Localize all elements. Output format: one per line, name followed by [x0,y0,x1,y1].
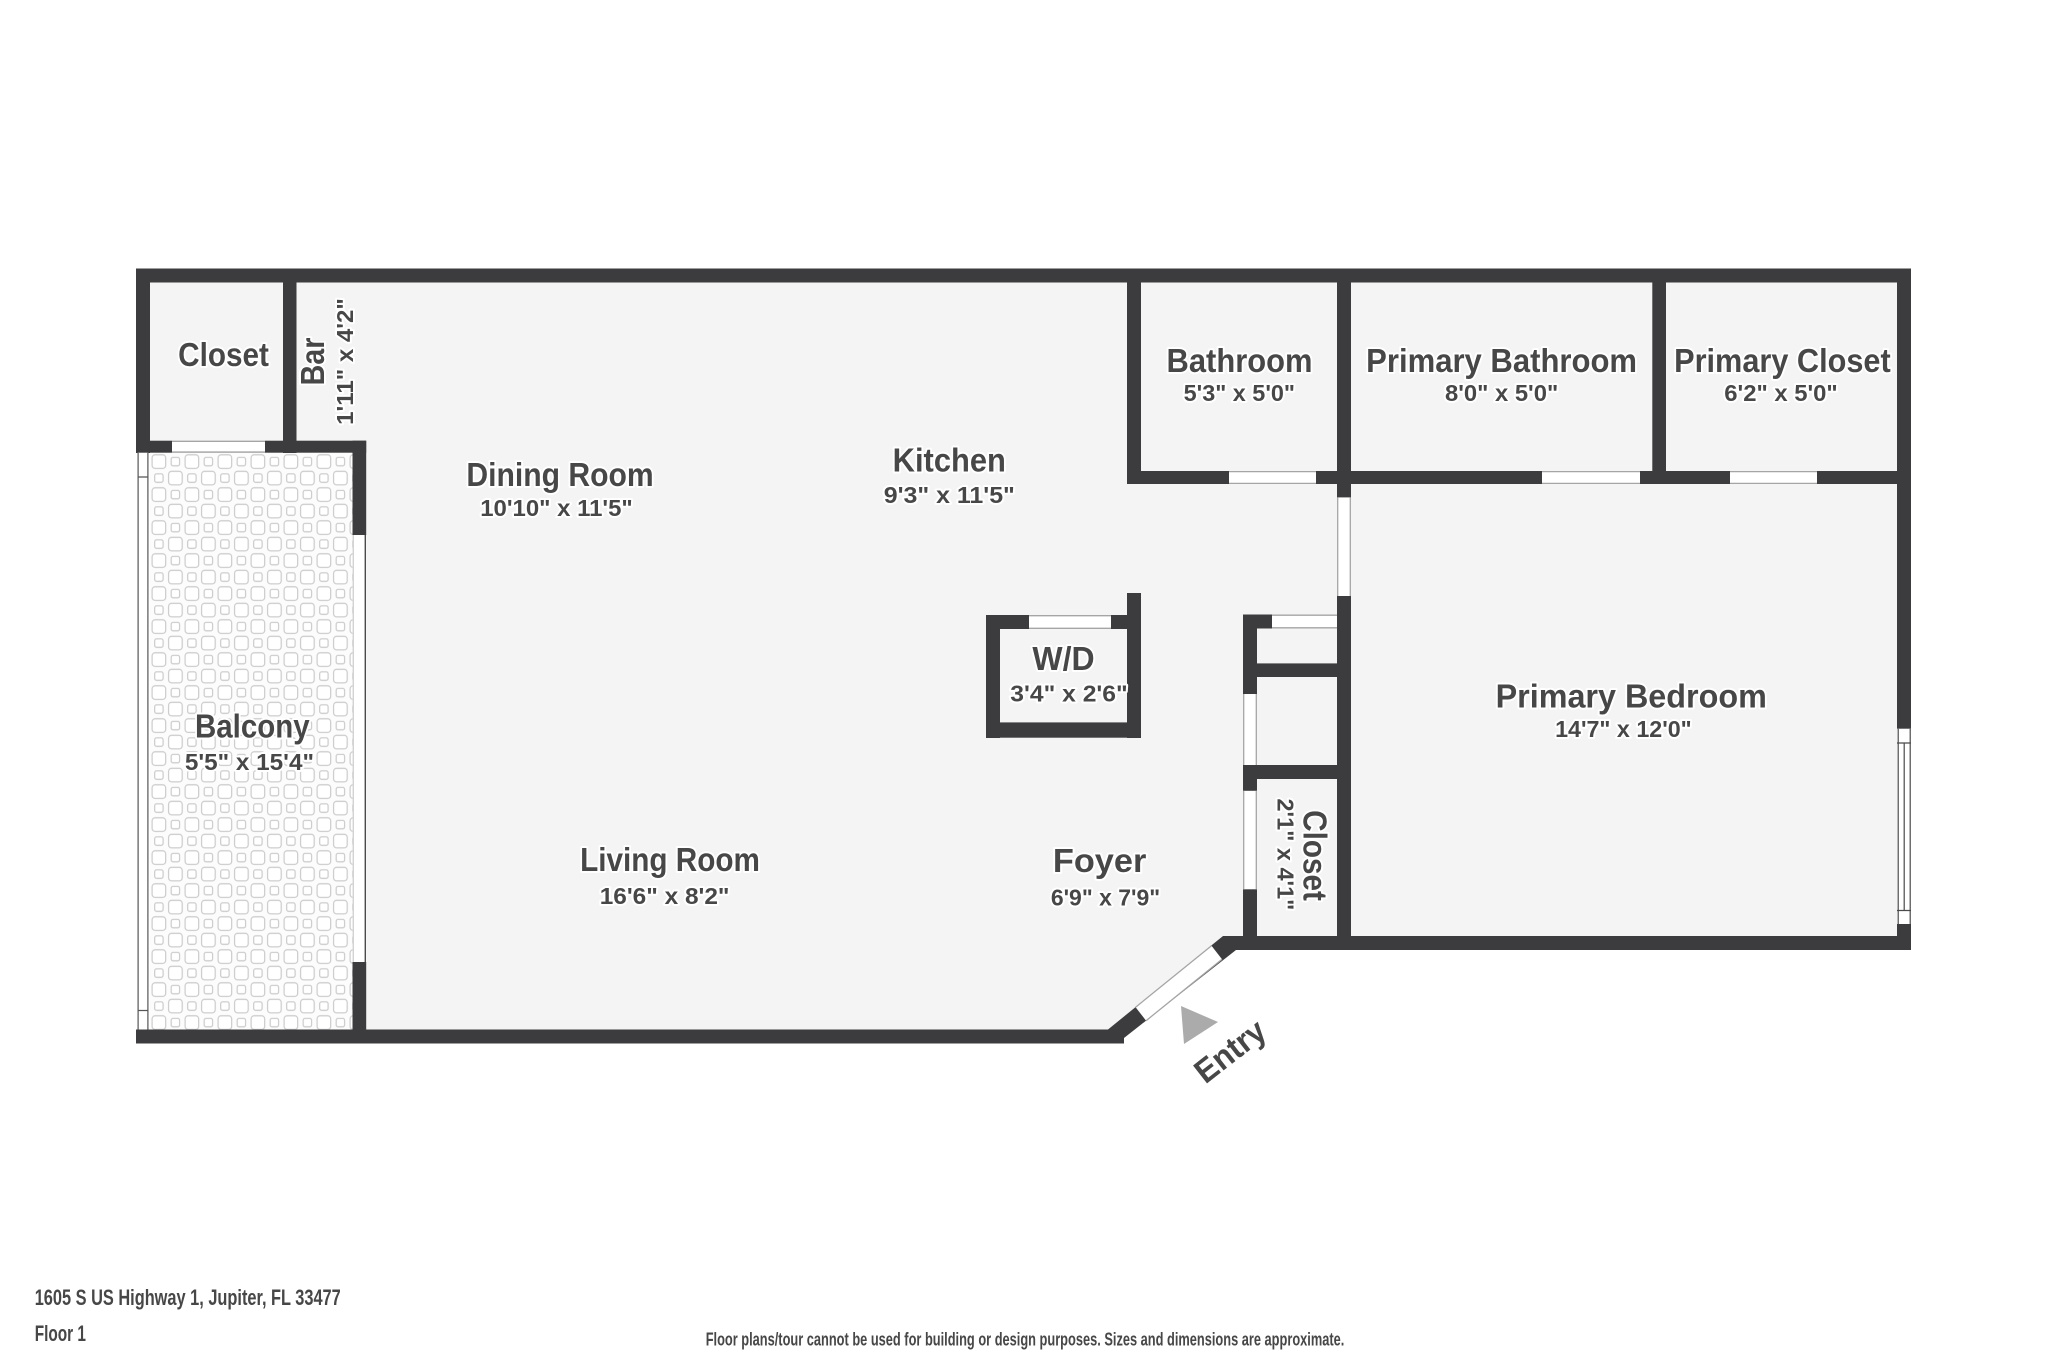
svg-text:Bathroom: Bathroom [1167,342,1313,379]
svg-text:2'1" x 4'1": 2'1" x 4'1" [1273,798,1299,910]
svg-text:1605 S US Highway 1, Jupiter,: 1605 S US Highway 1, Jupiter, FL 33477 [35,1286,341,1311]
svg-text:9'3" x 11'5": 9'3" x 11'5" [884,483,1015,509]
svg-text:W/D: W/D [1032,641,1094,678]
svg-text:16'6" x 8'2": 16'6" x 8'2" [600,884,730,910]
svg-text:3'4" x 2'6": 3'4" x 2'6" [1010,681,1127,707]
svg-text:Kitchen: Kitchen [893,441,1006,478]
svg-text:Foyer: Foyer [1053,844,1146,880]
svg-text:1'11" x 4'2": 1'11" x 4'2" [332,298,359,425]
svg-text:8'0" x 5'0": 8'0" x 5'0" [1445,381,1558,407]
svg-text:Closet: Closet [1296,810,1333,901]
svg-text:Primary Closet: Primary Closet [1674,342,1891,379]
svg-text:5'3" x 5'0": 5'3" x 5'0" [1184,380,1295,406]
svg-text:5'5" x 15'4": 5'5" x 15'4" [185,749,314,776]
svg-text:Floor 1: Floor 1 [35,1323,87,1347]
svg-text:Primary Bedroom: Primary Bedroom [1496,677,1767,714]
svg-text:Balcony: Balcony [195,708,310,745]
svg-text:10'10" x 11'5": 10'10" x 11'5" [480,496,633,522]
svg-text:Living Room: Living Room [580,842,760,879]
svg-text:6'9" x 7'9": 6'9" x 7'9" [1051,884,1160,910]
svg-text:6'2" x 5'0": 6'2" x 5'0" [1724,381,1837,407]
svg-text:14'7" x 12'0": 14'7" x 12'0" [1555,716,1692,742]
svg-text:Dining Room: Dining Room [466,456,653,494]
svg-text:Closet: Closet [178,337,269,374]
svg-text:Bar: Bar [294,338,331,386]
svg-text:Floor plans/tour cannot be use: Floor plans/tour cannot be used for buil… [706,1330,1345,1350]
svg-text:Primary Bathroom: Primary Bathroom [1366,342,1637,379]
